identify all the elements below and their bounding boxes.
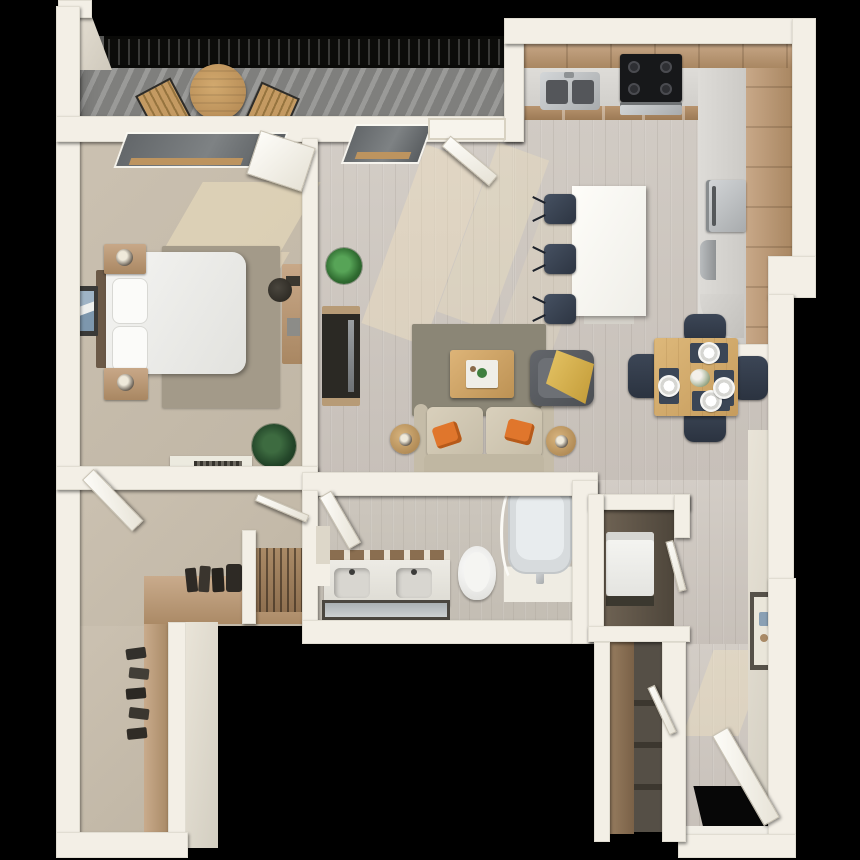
wall-laundry-left	[588, 494, 604, 642]
table-lamp	[555, 435, 568, 448]
sink-faucet	[349, 569, 355, 575]
handbag	[198, 566, 211, 593]
shoe	[125, 647, 146, 661]
refrigerator-handle	[712, 186, 716, 226]
wall-closet-partition	[242, 530, 256, 624]
bar-stool	[544, 194, 576, 224]
shoe	[126, 687, 147, 700]
shoe-row	[122, 648, 152, 748]
handbag	[185, 567, 198, 592]
tv-screen	[348, 320, 354, 392]
plate	[658, 375, 680, 397]
linen-niche	[316, 526, 330, 586]
potted-plant	[326, 248, 362, 284]
balcony-door-frame	[428, 118, 506, 140]
hanging-clothes	[252, 548, 302, 612]
cooktop	[620, 54, 682, 102]
kitchen-faucet	[564, 72, 574, 78]
bistro-table	[190, 64, 246, 120]
burner	[660, 61, 672, 73]
tv-console-top	[322, 314, 360, 398]
burner	[628, 61, 640, 73]
wall-entry-bottom	[678, 834, 796, 858]
wall-laundry-bottom	[588, 626, 690, 642]
shoe	[126, 727, 147, 740]
wall-bathroom-bottom	[302, 620, 598, 644]
vanity-mirror	[322, 600, 450, 620]
nightstand-lamp	[116, 249, 133, 266]
centerpiece-flowers	[690, 369, 710, 387]
kitchen-sink-basin	[546, 80, 568, 104]
bar-stool	[544, 244, 576, 274]
floor-plan-render	[0, 0, 860, 860]
wall-utility-right	[662, 642, 686, 842]
wall-bathroom-top	[302, 472, 598, 496]
bedroom-plant	[252, 424, 296, 468]
wall-laundry-right-stub	[674, 494, 690, 538]
washer-base	[606, 596, 654, 606]
plate	[698, 342, 720, 364]
handbag	[211, 568, 224, 593]
curtain-rod	[500, 482, 532, 584]
shoe	[128, 667, 149, 680]
desk-item	[287, 318, 300, 336]
wall-kitchen-top	[504, 18, 816, 44]
handbag	[226, 564, 242, 592]
wall-right-upper	[792, 18, 816, 294]
bar-stool	[544, 294, 576, 324]
living-window-sill	[355, 152, 412, 159]
wall-closet-inner	[168, 622, 186, 840]
toilet-lid	[464, 552, 490, 592]
wall-closet-bottom	[56, 832, 188, 858]
desk-chair	[268, 278, 292, 302]
burner	[660, 83, 672, 95]
utility-brown-panel	[610, 642, 634, 834]
sink-faucet	[411, 569, 417, 575]
tray-plant	[477, 368, 487, 378]
framed-art-print	[78, 291, 94, 331]
balcony-railing	[104, 36, 518, 68]
wall-closet-inner-face	[186, 622, 218, 848]
burner	[628, 83, 640, 95]
bed-pillow	[112, 278, 148, 324]
table-lamp	[399, 433, 412, 446]
plate	[713, 377, 735, 399]
wall-right-lower	[768, 294, 794, 626]
entry-art-motif	[760, 634, 768, 642]
oven-front	[620, 102, 682, 115]
tray-cup	[470, 366, 476, 372]
shoe	[128, 707, 149, 720]
wall-utility-left	[594, 642, 610, 842]
kitchen-sink-basin	[572, 80, 594, 104]
wall-right-step	[768, 256, 816, 298]
bedroom-window-sill	[129, 158, 244, 165]
kitchen-island	[572, 186, 646, 316]
wall-bedroom-living	[302, 138, 318, 478]
nightstand-lamp	[117, 374, 134, 391]
bed-pillow	[112, 326, 148, 372]
washer-dryer	[606, 532, 654, 596]
counter-appliance	[700, 240, 716, 280]
